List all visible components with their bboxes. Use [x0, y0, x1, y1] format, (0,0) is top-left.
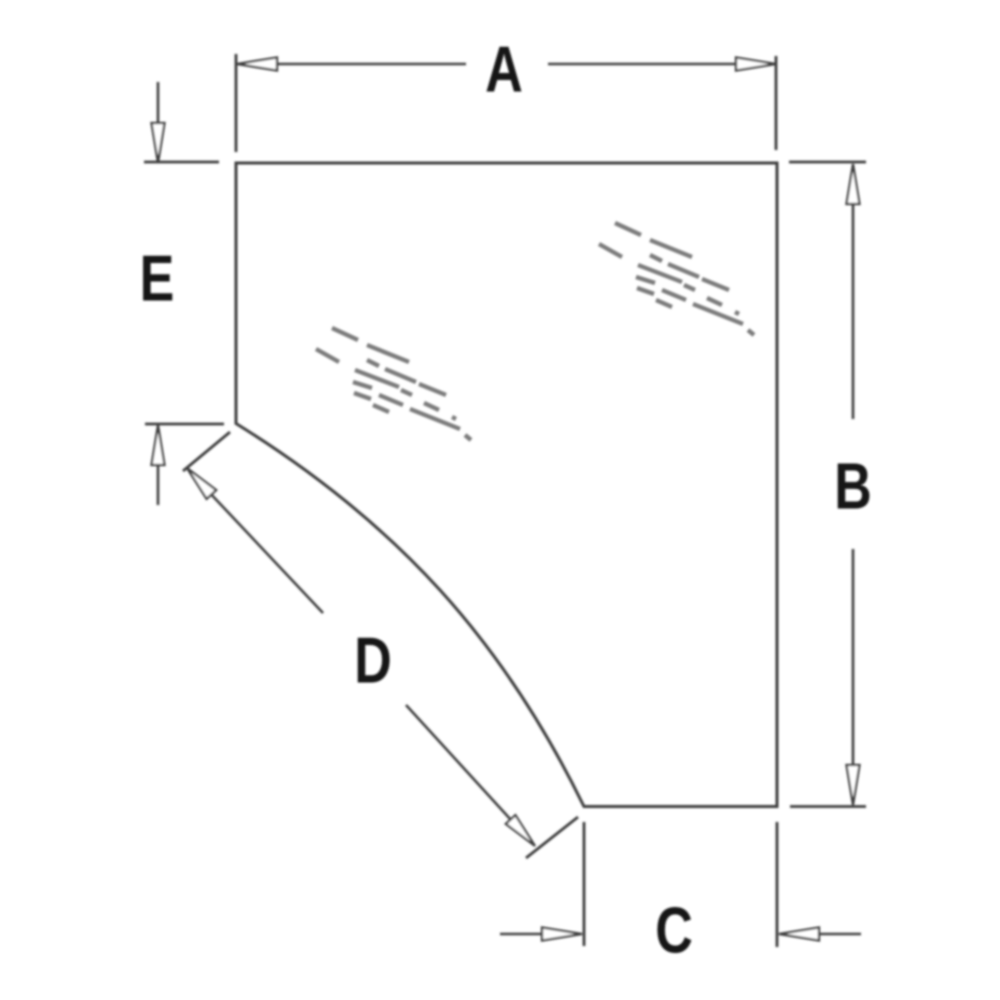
svg-text:E: E [140, 243, 175, 315]
svg-text:D: D [354, 625, 392, 697]
svg-text:B: B [834, 451, 872, 523]
svg-text:A: A [485, 34, 523, 106]
svg-text:C: C [655, 895, 693, 967]
